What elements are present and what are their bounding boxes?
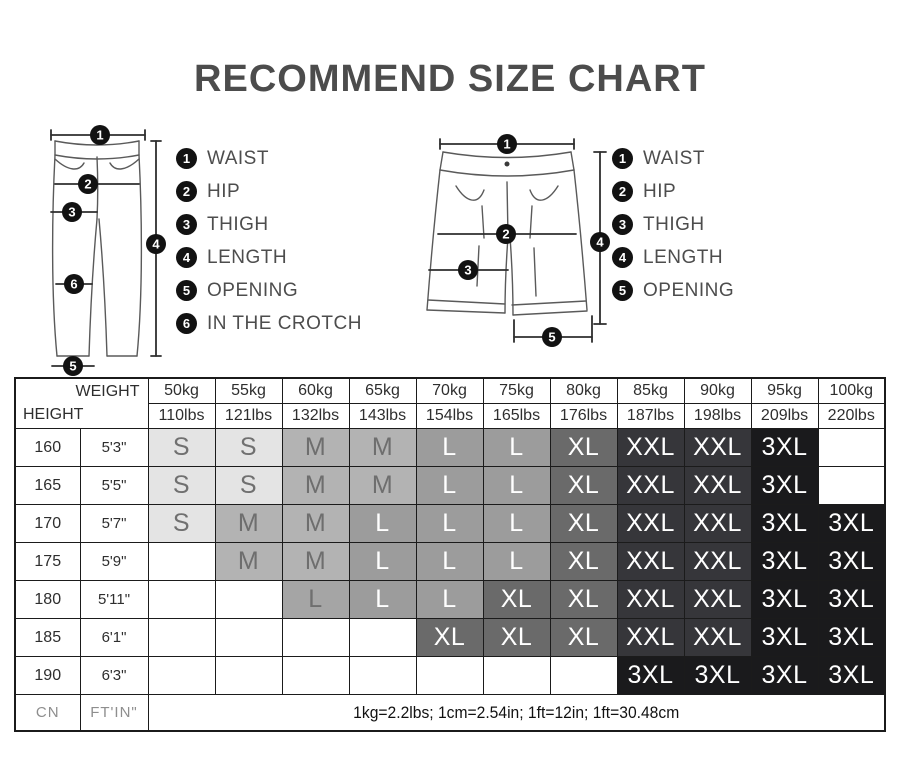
shorts-sketch: 1 2 3 4 5 xyxy=(424,134,616,352)
svg-text:6: 6 xyxy=(70,277,77,292)
size-cell-xxl: XXL xyxy=(684,429,751,467)
height-cm: 190 xyxy=(15,657,80,695)
weight-header-165lbs: 165lbs xyxy=(483,404,550,429)
legend-label: WAIST xyxy=(207,148,269,170)
pants-legend-item-in-the-crotch: 6IN THE CROTCH xyxy=(176,307,362,340)
size-cell-3xl: 3XL xyxy=(818,505,885,543)
numbered-circle-icon: 1 xyxy=(176,148,197,169)
svg-text:4: 4 xyxy=(596,235,604,250)
shorts-marker-thigh: 3 xyxy=(458,260,478,280)
height-ftin: 5'5" xyxy=(80,467,148,505)
svg-text:3: 3 xyxy=(68,205,75,220)
size-cell-xxl: XXL xyxy=(684,581,751,619)
height-row-175: 1755'9"MMLLLXLXXLXXL3XL3XL xyxy=(15,543,885,581)
size-cell-l: L xyxy=(349,505,416,543)
size-cell-3xl: 3XL xyxy=(751,505,818,543)
weight-header-198lbs: 198lbs xyxy=(684,404,751,429)
svg-text:1: 1 xyxy=(96,128,103,143)
size-cell-3xl: 3XL xyxy=(751,543,818,581)
numbered-circle-icon: 2 xyxy=(176,181,197,202)
weight-header-80kg: 80kg xyxy=(550,378,617,404)
size-cell-3xl: 3XL xyxy=(818,581,885,619)
height-row-170: 1705'7"SMMLLLXLXXLXXL3XL3XL xyxy=(15,505,885,543)
size-cell-empty xyxy=(215,619,282,657)
weight-header-220lbs: 220lbs xyxy=(818,404,885,429)
weight-header-121lbs: 121lbs xyxy=(215,404,282,429)
height-ftin: 5'7" xyxy=(80,505,148,543)
legend-label: OPENING xyxy=(643,280,734,302)
size-cell-3xl: 3XL xyxy=(684,657,751,695)
pants-marker-waist: 1 xyxy=(90,125,110,145)
legend-label: OPENING xyxy=(207,280,298,302)
height-row-185: 1856'1"XLXLXLXXLXXL3XL3XL xyxy=(15,619,885,657)
size-cell-m: M xyxy=(215,505,282,543)
pants-legend: 1WAIST2HIP3THIGH4LENGTH5OPENING6IN THE C… xyxy=(176,142,362,340)
size-cell-xl: XL xyxy=(550,505,617,543)
size-cell-s: S xyxy=(148,505,215,543)
height-cm: 165 xyxy=(15,467,80,505)
shorts-legend-item-waist: 1WAIST xyxy=(612,142,734,175)
size-cell-xl: XL xyxy=(416,619,483,657)
pants-marker-thigh: 3 xyxy=(62,202,82,222)
svg-text:2: 2 xyxy=(84,177,91,192)
size-cell-l: L xyxy=(416,543,483,581)
weight-header-187lbs: 187lbs xyxy=(617,404,684,429)
size-cell-empty xyxy=(550,657,617,695)
size-cell-3xl: 3XL xyxy=(751,657,818,695)
size-cell-m: M xyxy=(349,467,416,505)
ftin-unit-label: FT'IN" xyxy=(80,695,148,732)
size-cell-xxl: XXL xyxy=(617,581,684,619)
height-ftin: 5'9" xyxy=(80,543,148,581)
pants-marker-length: 4 xyxy=(146,234,166,254)
size-cell-l: L xyxy=(416,467,483,505)
size-cell-l: L xyxy=(349,543,416,581)
legend-label: THIGH xyxy=(207,214,269,236)
numbered-circle-icon: 5 xyxy=(176,280,197,301)
size-cell-xl: XL xyxy=(550,429,617,467)
size-cell-xxl: XXL xyxy=(617,543,684,581)
size-cell-empty xyxy=(282,657,349,695)
weight-header-50kg: 50kg xyxy=(148,378,215,404)
legend-label: LENGTH xyxy=(207,247,287,269)
size-cell-m: M xyxy=(215,543,282,581)
pants-marker-crotch: 6 xyxy=(64,274,84,294)
size-cell-3xl: 3XL xyxy=(751,467,818,505)
weight-header-55kg: 55kg xyxy=(215,378,282,404)
numbered-circle-icon: 4 xyxy=(176,247,197,268)
size-cell-empty xyxy=(215,581,282,619)
size-cell-xl: XL xyxy=(550,543,617,581)
size-cell-empty xyxy=(148,657,215,695)
shorts-legend: 1WAIST2HIP3THIGH4LENGTH5OPENING xyxy=(612,142,734,307)
weight-header-176lbs: 176lbs xyxy=(550,404,617,429)
height-row-190: 1906'3"3XL3XL3XL3XL xyxy=(15,657,885,695)
weight-header-209lbs: 209lbs xyxy=(751,404,818,429)
pants-marker-hip: 2 xyxy=(78,174,98,194)
svg-text:4: 4 xyxy=(152,237,160,252)
numbered-circle-icon: 2 xyxy=(612,181,633,202)
svg-text:5: 5 xyxy=(69,359,76,374)
shorts-marker-hip: 2 xyxy=(496,224,516,244)
size-cell-l: L xyxy=(483,505,550,543)
pants-legend-item-length: 4LENGTH xyxy=(176,241,362,274)
size-cell-xl: XL xyxy=(483,619,550,657)
size-cell-xl: XL xyxy=(483,581,550,619)
size-cell-l: L xyxy=(416,429,483,467)
height-axis-label: HEIGHT xyxy=(23,406,83,424)
size-cell-s: S xyxy=(215,429,282,467)
size-cell-l: L xyxy=(416,505,483,543)
height-row-165: 1655'5"SSMMLLXLXXLXXL3XL xyxy=(15,467,885,505)
cm-unit-label: CN xyxy=(15,695,80,732)
weight-header-75kg: 75kg xyxy=(483,378,550,404)
size-cell-xxl: XXL xyxy=(617,429,684,467)
height-cm: 175 xyxy=(15,543,80,581)
size-cell-xxl: XXL xyxy=(617,467,684,505)
size-cell-l: L xyxy=(282,581,349,619)
height-ftin: 5'3" xyxy=(80,429,148,467)
numbered-circle-icon: 5 xyxy=(612,280,633,301)
weight-header-90kg: 90kg xyxy=(684,378,751,404)
size-cell-3xl: 3XL xyxy=(818,543,885,581)
weight-header-70kg: 70kg xyxy=(416,378,483,404)
size-cell-empty xyxy=(349,619,416,657)
height-row-180: 1805'11"LLLXLXLXXLXXL3XL3XL xyxy=(15,581,885,619)
pants-sketch: 1 2 3 4 6 5 xyxy=(48,124,168,378)
size-cell-3xl: 3XL xyxy=(751,581,818,619)
weight-kg-row: WEIGHT HEIGHT 50kg55kg60kg65kg70kg75kg80… xyxy=(15,378,885,404)
size-cell-l: L xyxy=(483,467,550,505)
size-cell-empty xyxy=(148,581,215,619)
shorts-legend-item-length: 4LENGTH xyxy=(612,241,734,274)
pants-legend-item-hip: 2HIP xyxy=(176,175,362,208)
table-corner-cell: WEIGHT HEIGHT xyxy=(15,378,148,429)
legend-label: LENGTH xyxy=(643,247,723,269)
shorts-legend-item-opening: 5OPENING xyxy=(612,274,734,307)
pants-legend-item-opening: 5OPENING xyxy=(176,274,362,307)
size-cell-xxl: XXL xyxy=(684,467,751,505)
size-cell-l: L xyxy=(416,581,483,619)
size-cell-m: M xyxy=(282,467,349,505)
weight-header-154lbs: 154lbs xyxy=(416,404,483,429)
weight-header-85kg: 85kg xyxy=(617,378,684,404)
height-cm: 160 xyxy=(15,429,80,467)
size-chart-table: WEIGHT HEIGHT 50kg55kg60kg65kg70kg75kg80… xyxy=(14,377,886,732)
size-cell-3xl: 3XL xyxy=(617,657,684,695)
height-ftin: 6'1" xyxy=(80,619,148,657)
size-cell-s: S xyxy=(215,467,282,505)
size-cell-s: S xyxy=(148,429,215,467)
weight-axis-label: WEIGHT xyxy=(76,383,140,401)
size-cell-m: M xyxy=(349,429,416,467)
height-cm: 185 xyxy=(15,619,80,657)
height-ftin: 5'11" xyxy=(80,581,148,619)
size-cell-3xl: 3XL xyxy=(751,619,818,657)
size-cell-empty xyxy=(818,467,885,505)
size-cell-empty xyxy=(148,619,215,657)
size-cell-3xl: 3XL xyxy=(818,657,885,695)
size-cell-xxl: XXL xyxy=(684,543,751,581)
conversion-note: 1kg=2.2lbs; 1cm=2.54in; 1ft=12in; 1ft=30… xyxy=(353,703,679,723)
weight-header-132lbs: 132lbs xyxy=(282,404,349,429)
numbered-circle-icon: 1 xyxy=(612,148,633,169)
size-cell-empty xyxy=(483,657,550,695)
size-cell-empty xyxy=(148,543,215,581)
shorts-legend-item-thigh: 3THIGH xyxy=(612,208,734,241)
legend-label: WAIST xyxy=(643,148,705,170)
size-cell-m: M xyxy=(282,505,349,543)
height-row-160: 1605'3"SSMMLLXLXXLXXL3XL xyxy=(15,429,885,467)
numbered-circle-icon: 6 xyxy=(176,313,197,334)
size-cell-xl: XL xyxy=(550,467,617,505)
size-cell-empty xyxy=(818,429,885,467)
units-row: CN FT'IN" 1kg=2.2lbs; 1cm=2.54in; 1ft=12… xyxy=(15,695,885,732)
size-cell-3xl: 3XL xyxy=(818,619,885,657)
size-cell-xl: XL xyxy=(550,619,617,657)
legend-label: IN THE CROTCH xyxy=(207,313,362,335)
numbered-circle-icon: 3 xyxy=(176,214,197,235)
size-cell-empty xyxy=(282,619,349,657)
svg-text:2: 2 xyxy=(502,227,509,242)
shorts-marker-length: 4 xyxy=(590,232,610,252)
shorts-marker-waist: 1 xyxy=(497,134,517,154)
size-cell-empty xyxy=(215,657,282,695)
shorts-legend-item-hip: 2HIP xyxy=(612,175,734,208)
size-cell-xxl: XXL xyxy=(617,505,684,543)
size-cell-l: L xyxy=(349,581,416,619)
shorts-marker-opening: 5 xyxy=(542,327,562,347)
size-cell-s: S xyxy=(148,467,215,505)
weight-header-100kg: 100kg xyxy=(818,378,885,404)
weight-header-65kg: 65kg xyxy=(349,378,416,404)
weight-header-110lbs: 110lbs xyxy=(148,404,215,429)
height-cm: 180 xyxy=(15,581,80,619)
size-cell-l: L xyxy=(483,543,550,581)
weight-header-95kg: 95kg xyxy=(751,378,818,404)
size-cell-m: M xyxy=(282,543,349,581)
legend-label: THIGH xyxy=(643,214,705,236)
size-cell-3xl: 3XL xyxy=(751,429,818,467)
size-cell-m: M xyxy=(282,429,349,467)
height-cm: 170 xyxy=(15,505,80,543)
height-ftin: 6'3" xyxy=(80,657,148,695)
size-cell-l: L xyxy=(483,429,550,467)
size-cell-xl: XL xyxy=(550,581,617,619)
svg-text:1: 1 xyxy=(503,137,510,152)
size-cell-xxl: XXL xyxy=(617,619,684,657)
size-cell-empty xyxy=(349,657,416,695)
conversion-note-cell: 1kg=2.2lbs; 1cm=2.54in; 1ft=12in; 1ft=30… xyxy=(148,695,885,732)
numbered-circle-icon: 3 xyxy=(612,214,633,235)
pants-legend-item-thigh: 3THIGH xyxy=(176,208,362,241)
numbered-circle-icon: 4 xyxy=(612,247,633,268)
svg-text:5: 5 xyxy=(548,330,555,345)
weight-header-143lbs: 143lbs xyxy=(349,404,416,429)
legend-label: HIP xyxy=(207,181,240,203)
pants-marker-opening: 5 xyxy=(63,356,83,376)
legend-label: HIP xyxy=(643,181,676,203)
weight-header-60kg: 60kg xyxy=(282,378,349,404)
svg-text:3: 3 xyxy=(464,263,471,278)
size-cell-empty xyxy=(416,657,483,695)
page-title: RECOMMEND SIZE CHART xyxy=(0,58,900,101)
size-cell-xxl: XXL xyxy=(684,619,751,657)
size-cell-xxl: XXL xyxy=(684,505,751,543)
pants-legend-item-waist: 1WAIST xyxy=(176,142,362,175)
